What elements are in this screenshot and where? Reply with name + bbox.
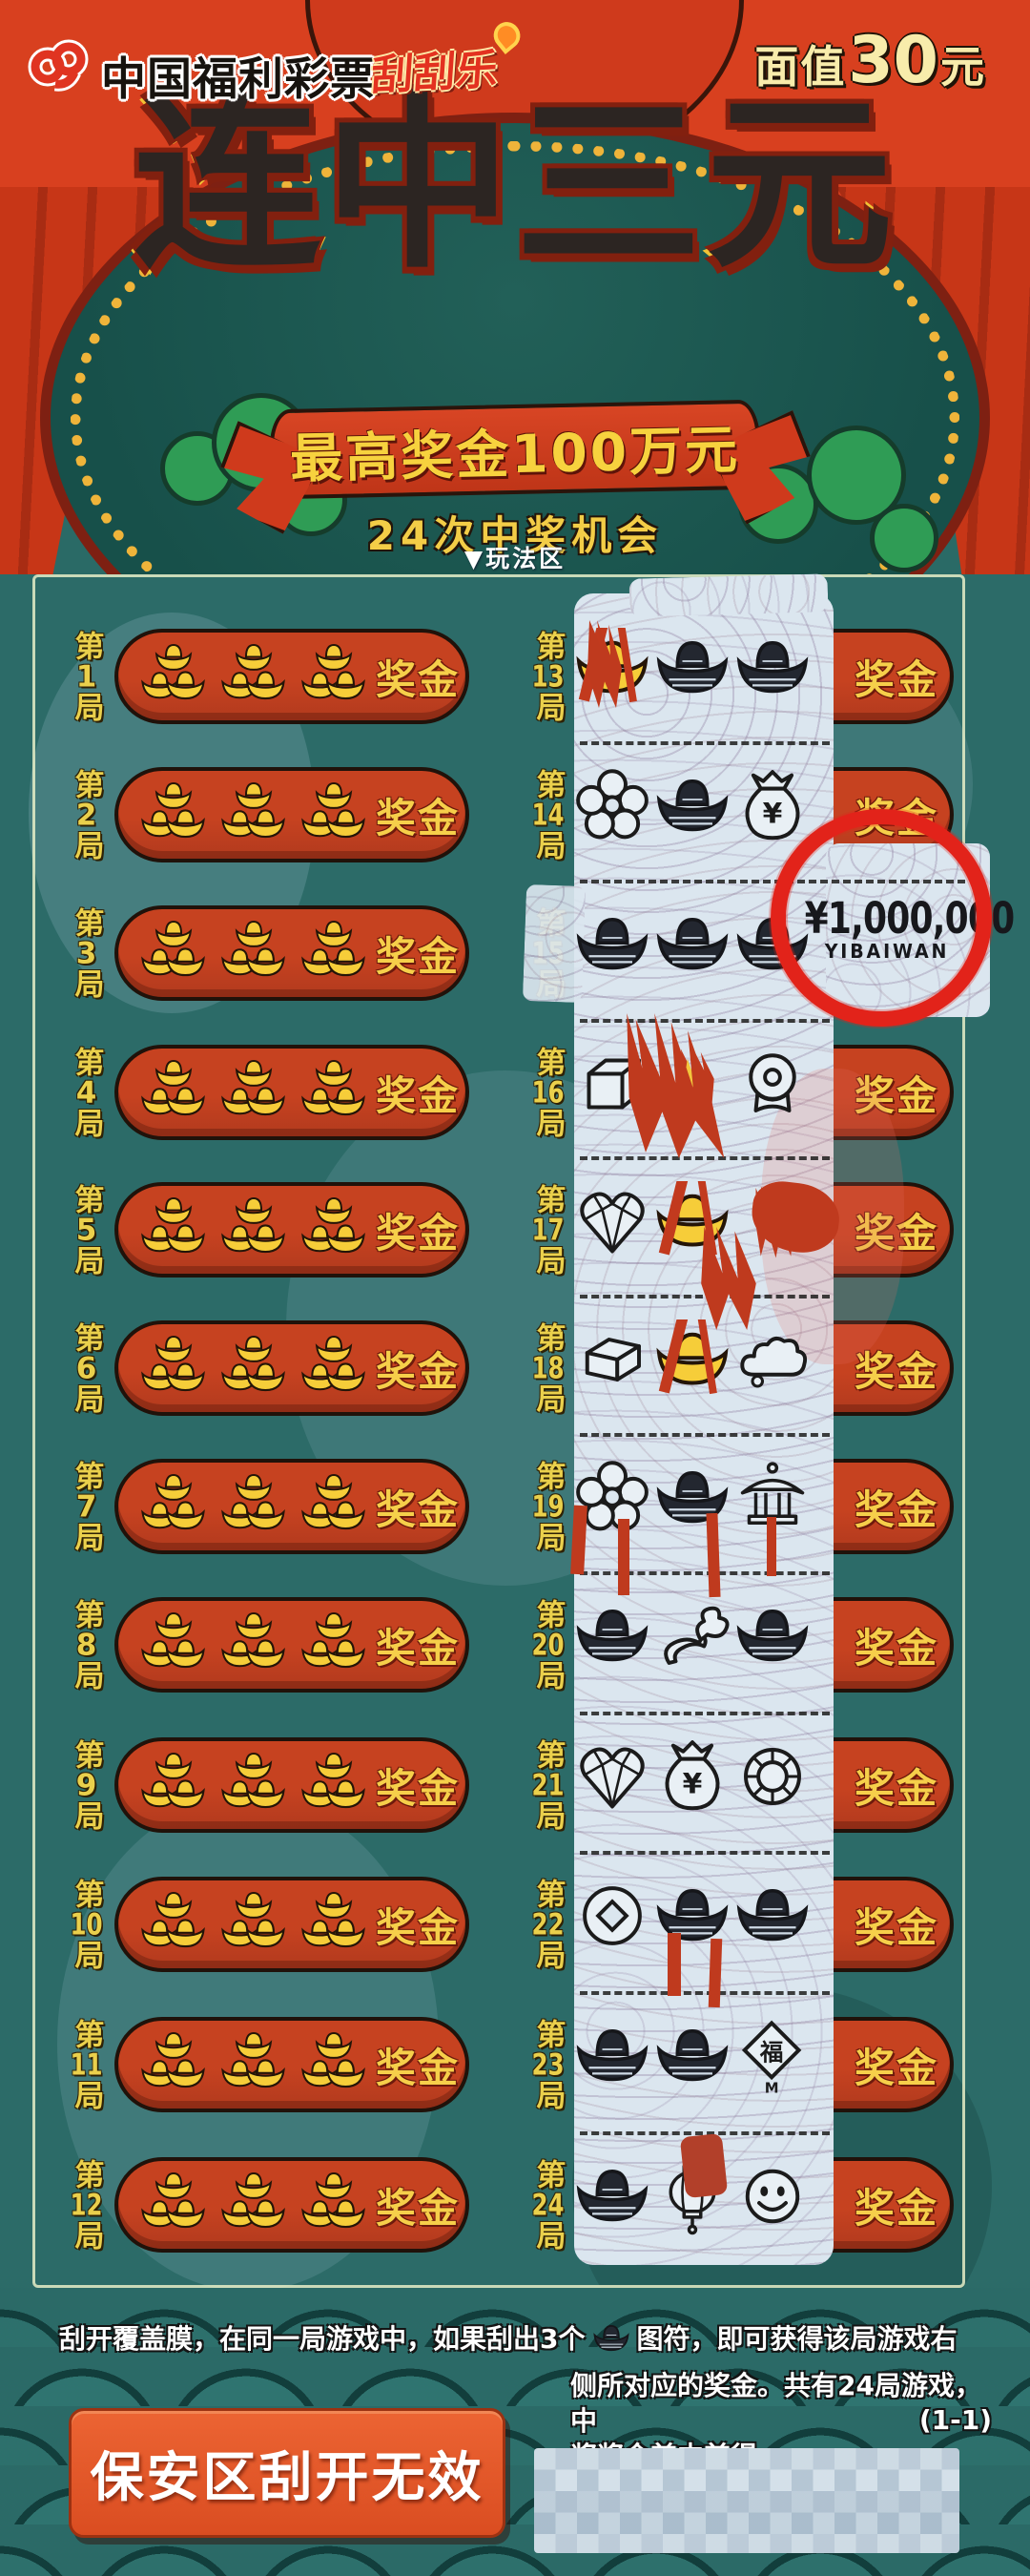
- revealed-symbols: [572, 1596, 813, 1676]
- game-label: 第18局: [526, 1312, 568, 1424]
- gold-ingots-icon: [216, 1333, 292, 1403]
- gold-ingots-icon: [216, 641, 292, 712]
- prize-pill: 奖金: [114, 1597, 469, 1693]
- gold-ingots-icon: [135, 1195, 212, 1265]
- prize-pill: 奖金: [114, 905, 469, 1001]
- game-label: 第9局: [65, 1729, 107, 1841]
- scratch-separator: [580, 1156, 830, 1160]
- game-label: 第21局: [526, 1729, 568, 1841]
- prize-label: 奖金: [376, 1064, 460, 1122]
- gold-ingots-icon: [135, 2029, 212, 2100]
- game-row-left: 第7局奖金: [65, 1450, 469, 1563]
- symbol-ingot-icon: [572, 2156, 652, 2236]
- prize-label: 奖金: [376, 1756, 460, 1815]
- game-label: 第19局: [526, 1450, 568, 1563]
- game-row-left: 第11局奖金: [65, 2008, 469, 2121]
- china-welfare-lottery-logo-icon: [27, 36, 90, 95]
- scratch-separator: [580, 1295, 830, 1298]
- prize-pill: 奖金: [114, 1320, 469, 1416]
- game-label: 第3局: [65, 897, 107, 1009]
- brand-name: 中国福利彩票: [101, 42, 376, 108]
- prize-pill: 奖金: [114, 1045, 469, 1140]
- gold-ingots-icon: [135, 779, 212, 850]
- page-code: (1-1): [896, 2402, 992, 2438]
- prize-label: 奖金: [376, 2176, 460, 2234]
- symbol-ingot-icon: [732, 1876, 813, 1956]
- revealed-symbols: [572, 766, 813, 846]
- gold-ingots-icon: [296, 779, 372, 850]
- game-label: 第6局: [65, 1312, 107, 1424]
- game-label: 第16局: [526, 1036, 568, 1149]
- gold-ingots-icon: [135, 1750, 212, 1820]
- prize-label: 奖金: [376, 1616, 460, 1674]
- instructions-text: 图符，即可获得该局游戏右: [637, 2321, 958, 2357]
- symbol-ruyi-icon: [652, 1596, 732, 1676]
- prize-pill: 奖金: [114, 629, 469, 724]
- gold-ingots-icon: [296, 2170, 372, 2240]
- game-row-left: 第3局奖金: [65, 897, 469, 1009]
- symbol-ingot-icon: [652, 628, 732, 708]
- play-area-marker: ▼玩法区: [0, 540, 1030, 574]
- game-label: 第14局: [526, 758, 568, 871]
- game-label: 第11局: [65, 2008, 107, 2121]
- gold-ingots-icon: [296, 1333, 372, 1403]
- symbol-gold-bar-icon: [572, 1319, 652, 1400]
- prize-pill: 奖金: [114, 1877, 469, 1972]
- prize-label: 奖金: [376, 1478, 460, 1536]
- symbol-money-bag-icon: [652, 1736, 732, 1817]
- prize-label: 奖金: [376, 648, 460, 706]
- scratch-separator: [580, 741, 830, 745]
- top-prize-ribbon: 最高奖金100万元: [269, 400, 761, 500]
- gold-ingots-icon: [296, 1610, 372, 1680]
- symbol-ingot-icon: [652, 766, 732, 846]
- gold-ingots-icon: [135, 1610, 212, 1680]
- ticket-header: 连中三元 最高奖金100万元 24次中奖机会 ▼玩法区 中国福利彩票 刮刮乐 面…: [0, 0, 1030, 574]
- gold-ingots-icon: [216, 1610, 292, 1680]
- prize-pill: 奖金: [114, 2157, 469, 2253]
- revealed-symbols: [572, 1736, 813, 1817]
- gold-ingots-icon: [135, 1471, 212, 1542]
- prize-pill: 奖金: [114, 1459, 469, 1554]
- game-title: 连中三元: [57, 92, 973, 279]
- gold-ingots-icon: [216, 2029, 292, 2100]
- symbol-heart-gem-icon: [572, 1181, 652, 1261]
- symbol-ingot-icon: [572, 2016, 652, 2096]
- instructions-line1: 刮开覆盖膜，在同一局游戏中，如果刮出3个 图符，即可获得该局游戏右: [59, 2318, 994, 2358]
- lottery-ticket: 连中三元 最高奖金100万元 24次中奖机会 ▼玩法区 中国福利彩票 刮刮乐 面…: [0, 0, 1030, 2576]
- gold-ingots-icon: [216, 918, 292, 988]
- game-label: 第4局: [65, 1036, 107, 1149]
- gold-ingots-icon: [135, 2170, 212, 2240]
- gold-ingots-icon: [296, 641, 372, 712]
- gold-ingots-icon: [216, 1057, 292, 1128]
- gold-ingots-icon: [216, 1195, 292, 1265]
- gold-ingots-icon: [216, 2170, 292, 2240]
- game-row-left: 第5局奖金: [65, 1174, 469, 1286]
- prize-label: 奖金: [855, 1896, 938, 1954]
- symbol-ingot-icon: [652, 904, 732, 985]
- gold-ingots-icon: [135, 641, 212, 712]
- guaguale-logo: 刮刮乐: [369, 35, 500, 103]
- foil-remnant: [709, 1939, 723, 2007]
- gold-ingots-icon: [216, 779, 292, 850]
- prize-pill: 奖金: [114, 2017, 469, 2112]
- game-label: 第22局: [526, 1868, 568, 1981]
- game-row-left: 第9局奖金: [65, 1729, 469, 1841]
- game-label: 第10局: [65, 1868, 107, 1981]
- symbol-flower-icon: [572, 766, 652, 846]
- gold-ingots-icon: [216, 1889, 292, 1960]
- game-label: 第23局: [526, 2008, 568, 2121]
- revealed-symbols: [572, 1319, 813, 1400]
- gold-ingots-icon: [296, 1750, 372, 1820]
- gold-ingots-icon: [216, 1471, 292, 1542]
- scratch-separator: [580, 1712, 830, 1715]
- prize-label: 奖金: [855, 1616, 938, 1674]
- game-label: 第8局: [65, 1589, 107, 1701]
- face-value: 面值 30 元: [754, 23, 986, 98]
- instructions-text: 刮开覆盖膜，在同一局游戏中，如果刮出3个: [59, 2321, 586, 2357]
- prize-label: 奖金: [855, 1478, 938, 1536]
- prize-label: 奖金: [376, 1201, 460, 1259]
- gold-ingots-icon: [296, 2029, 372, 2100]
- game-label: 第1局: [65, 620, 107, 733]
- game-label: 第5局: [65, 1174, 107, 1286]
- blurred-barcode: [534, 2448, 959, 2553]
- scratch-separator: [580, 1851, 830, 1855]
- ingot-icon: [591, 2318, 631, 2358]
- prize-pill: 奖金: [114, 1182, 469, 1278]
- game-row-left: 第1局奖金: [65, 620, 469, 733]
- gold-ingots-icon: [296, 1195, 372, 1265]
- gold-ingots-icon: [296, 918, 372, 988]
- symbol-ingot-icon: [652, 2016, 732, 2096]
- game-label: 第13局: [526, 620, 568, 733]
- symbol-ring-icon: [732, 1736, 813, 1817]
- revealed-symbols: [572, 1876, 813, 1956]
- symbol-smiley-icon: [732, 2156, 813, 2236]
- game-label: 第12局: [65, 2149, 107, 2261]
- gold-ingots-icon: [296, 1889, 372, 1960]
- brand-bar: 中国福利彩票 刮刮乐 面值 30 元: [0, 0, 1030, 105]
- prize-label: 奖金: [855, 648, 938, 706]
- game-row-left: 第4局奖金: [65, 1036, 469, 1149]
- symbol-ingot-icon: [572, 904, 652, 985]
- symbol-ingot-icon: [572, 1596, 652, 1676]
- symbol-fu-diamond-icon: [732, 2016, 813, 2096]
- gold-ingots-icon: [296, 1057, 372, 1128]
- game-label: 第2局: [65, 758, 107, 871]
- gold-ingots-icon: [135, 1057, 212, 1128]
- symbol-ingot-icon: [732, 628, 813, 708]
- revealed-symbols: [572, 2016, 813, 2096]
- gold-ingots-icon: [135, 1333, 212, 1403]
- game-label: 第20局: [526, 1589, 568, 1701]
- symbol-money-bag-icon: [732, 766, 813, 846]
- scratch-separator: [580, 1019, 830, 1023]
- prize-pill: 奖金: [114, 1737, 469, 1833]
- prize-label: 奖金: [855, 2176, 938, 2234]
- symbol-heart-gem-icon: [572, 1736, 652, 1817]
- foil-remnant: [767, 1517, 776, 1576]
- prize-label: 奖金: [855, 1756, 938, 1815]
- game-row-left: 第2局奖金: [65, 758, 469, 871]
- game-row-left: 第10局奖金: [65, 1868, 469, 1981]
- symbol-ingot-icon: [732, 1596, 813, 1676]
- prize-label: 奖金: [855, 2036, 938, 2094]
- scratch-separator: [580, 1991, 830, 1995]
- gold-ingots-icon: [216, 1750, 292, 1820]
- prize-label: 奖金: [376, 786, 460, 844]
- symbol-ingot-partial-icon: [652, 1319, 732, 1400]
- game-row-left: 第12局奖金: [65, 2149, 469, 2261]
- security-area-notice: 保安区刮开无效: [69, 2408, 505, 2538]
- symbol-cloud-icon: [732, 1319, 813, 1400]
- symbol-ingot-icon: [652, 1458, 732, 1538]
- prize-label: 奖金: [376, 1896, 460, 1954]
- top-prize-text: 最高奖金100万元: [289, 406, 740, 492]
- gold-ingots-icon: [296, 1471, 372, 1542]
- scratch-film: [629, 573, 829, 616]
- prize-pill: 奖金: [114, 767, 469, 862]
- game-row-left: 第8局奖金: [65, 1589, 469, 1701]
- symbol-medal-icon: [732, 1044, 813, 1124]
- revealed-symbols: [572, 1458, 813, 1538]
- game-label: 第7局: [65, 1450, 107, 1563]
- gold-ingots-icon: [135, 1889, 212, 1960]
- prize-label: 奖金: [376, 2036, 460, 2094]
- gold-ingots-icon: [135, 918, 212, 988]
- game-row-left: 第6局奖金: [65, 1312, 469, 1424]
- foil-remnant: [668, 1933, 681, 1996]
- symbol-coin-icon: [572, 1876, 652, 1956]
- foil-remnant: [680, 2133, 728, 2198]
- game-label: 第24局: [526, 2149, 568, 2261]
- scratch-separator: [580, 1433, 830, 1437]
- prize-label: 奖金: [376, 924, 460, 983]
- foil-remnant: [618, 1519, 629, 1595]
- game-label: 第17局: [526, 1174, 568, 1286]
- prize-label: 奖金: [376, 1340, 460, 1398]
